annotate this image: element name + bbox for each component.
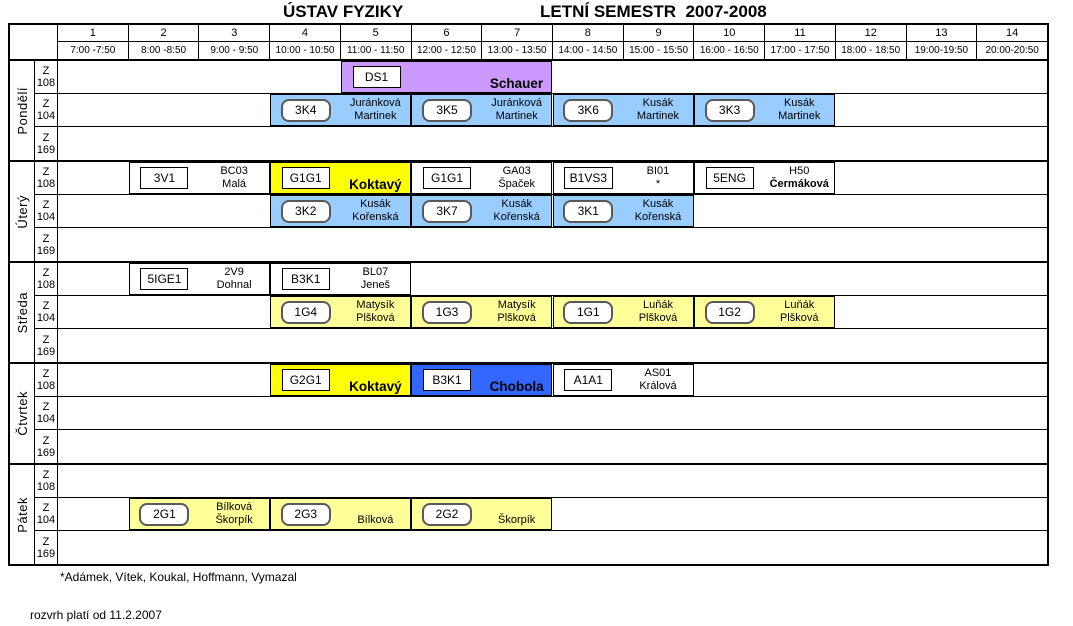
class-block: 1G4MatysíkPlšková [270, 296, 411, 328]
room-label-line1: Z [35, 368, 57, 380]
class-code-cell: 3K5 [412, 99, 482, 122]
room-row: Z1041G4MatysíkPlšková1G3MatysíkPlšková1G… [35, 296, 1047, 329]
class-block: B3K1Chobola [411, 364, 552, 396]
class-block: B3K1BL07Jeneš [270, 263, 411, 295]
room-label-line2: 108 [35, 178, 57, 190]
day-rows: Z108G2G1KoktavýB3K1ChobolaA1A1AS01Králov… [35, 364, 1047, 463]
class-block: A1A1AS01Králová [553, 364, 694, 396]
room-label-line1: Z [35, 502, 57, 514]
class-code-chip: 1G4 [281, 301, 331, 324]
class-code-cell: 3K1 [554, 200, 624, 223]
class-code-cell: 5IGE1 [130, 268, 200, 290]
room-label: Z108 [35, 61, 58, 93]
class-code-cell: B1VS3 [554, 167, 624, 189]
block-line2: Martinek [623, 110, 693, 123]
class-text-cell: KusákKořenská [482, 198, 552, 224]
day-rows: Z1083V1BC03MaláG1G1KoktavýG1G1GA03Špaček… [35, 162, 1047, 261]
row-body: 2G1BílkováŠkorpík2G3Bílková2G2Škorpík [58, 498, 1047, 530]
room-label-line1: Z [35, 536, 57, 548]
block-line1: AS01 [623, 367, 693, 380]
period-time: 20:00-20:50 [976, 42, 1047, 59]
class-block: 1G1LuňákPlšková [553, 296, 694, 328]
block-line1 [482, 367, 552, 380]
class-code-cell: 1G4 [271, 301, 341, 324]
row-body: 3K2KusákKořenská3K7KusákKořenská3K1Kusák… [58, 195, 1047, 227]
period-number: 8 [552, 25, 623, 42]
room-label: Z104 [35, 195, 58, 227]
day-rows: Z108DS1SchauerZ1043K4JuránkováMartinek3K… [35, 61, 1047, 160]
block-line2: Jeneš [341, 279, 411, 292]
room-label: Z169 [35, 329, 58, 362]
block-line1: BL07 [341, 266, 411, 279]
class-text-cell: BílkováŠkorpík [199, 501, 269, 527]
class-text-cell: Bílková [341, 501, 411, 527]
day-band: ÚterýZ1083V1BC03MaláG1G1KoktavýG1G1GA03Š… [10, 162, 1047, 263]
block-line1: 2V9 [199, 266, 269, 279]
header-corner-cell [10, 25, 57, 59]
period-time: 14:00 - 14:50 [552, 42, 623, 59]
class-text-cell: MatysíkPlšková [341, 299, 411, 325]
period-time: 19:00-19:50 [906, 42, 977, 59]
period-time: 16:00 - 16:50 [693, 42, 764, 59]
class-code-cell: B3K1 [412, 369, 482, 391]
room-label-line1: Z [35, 233, 57, 245]
room-label-line2: 169 [35, 548, 57, 560]
room-row: Z169 [35, 329, 1047, 362]
class-code-chip: B3K1 [423, 369, 471, 391]
room-label: Z104 [35, 498, 58, 530]
block-line1: Matysík [341, 299, 411, 312]
period-number: 4 [269, 25, 340, 42]
block-line2: Martinek [764, 110, 834, 123]
class-code-cell: B3K1 [271, 268, 341, 290]
block-line2: Plšková [482, 312, 552, 325]
room-row: Z1042G1BílkováŠkorpík2G3Bílková2G2Škorpí… [35, 498, 1047, 531]
class-text-cell: 2V9Dohnal [199, 266, 269, 292]
row-body: 3K4JuránkováMartinek3K5JuránkováMartinek… [58, 94, 1047, 126]
period-number: 10 [693, 25, 764, 42]
room-row: Z108 [35, 465, 1047, 498]
room-row: Z1085IGE12V9DohnalB3K1BL07Jeneš [35, 263, 1047, 296]
day-label: Pátek [10, 465, 35, 564]
class-block: 3K5JuránkováMartinek [411, 94, 552, 126]
period-time: 9:00 - 9:50 [198, 42, 269, 59]
class-code-cell: 1G2 [695, 301, 765, 324]
class-code-chip: 3K5 [422, 99, 472, 122]
block-line1: Matysík [482, 299, 552, 312]
room-row: Z1043K2KusákKořenská3K7KusákKořenská3K1K… [35, 195, 1047, 228]
block-line1: Kusák [623, 198, 693, 211]
block-line2: Škorpík [199, 514, 269, 527]
class-code-cell: A1A1 [554, 369, 624, 391]
class-code-chip: 1G1 [563, 301, 613, 324]
class-code-chip: 3K1 [563, 200, 613, 223]
class-text-cell: JuránkováMartinek [482, 97, 552, 123]
class-block: 2G3Bílková [270, 498, 411, 530]
class-code-cell: 3K2 [271, 200, 341, 223]
class-code-chip: 3K3 [705, 99, 755, 122]
block-line1: Bílková [199, 501, 269, 514]
day-name: Pondělí [15, 87, 30, 135]
day-label: Pondělí [10, 61, 35, 160]
class-text-cell: JuránkováMartinek [341, 97, 411, 123]
room-row: Z169 [35, 430, 1047, 463]
room-row: Z1043K4JuránkováMartinek3K5JuránkováMart… [35, 94, 1047, 127]
class-code-chip: 2G1 [139, 503, 189, 526]
class-code-chip: DS1 [353, 66, 401, 88]
class-block: 3K3KusákMartinek [694, 94, 835, 126]
period-number: 5 [340, 25, 411, 42]
room-label: Z104 [35, 397, 58, 429]
class-text-cell: Škorpík [482, 501, 552, 527]
block-line1 [341, 501, 411, 514]
room-label-line2: 108 [35, 279, 57, 291]
class-code-cell: G1G1 [271, 167, 341, 189]
room-row: Z104 [35, 397, 1047, 430]
room-row: Z169 [35, 228, 1047, 261]
class-code-cell: G1G1 [412, 167, 482, 189]
day-band: ČtvrtekZ108G2G1KoktavýB3K1ChobolaA1A1AS0… [10, 364, 1047, 465]
room-label-line1: Z [35, 435, 57, 447]
block-line2: Kořenská [341, 211, 411, 224]
block-line1: BC03 [199, 165, 269, 178]
period-time: 15:00 - 15:50 [623, 42, 694, 59]
class-code-chip: 3K2 [281, 200, 331, 223]
block-line2: Kořenská [623, 211, 693, 224]
block-line2: Chobola [482, 380, 552, 394]
block-line2: Koktavý [341, 178, 411, 192]
period-number: 12 [835, 25, 906, 42]
block-line1: Kusák [623, 97, 693, 110]
room-label: Z108 [35, 263, 58, 295]
day-band: PátekZ108Z1042G1BílkováŠkorpík2G3Bílková… [10, 465, 1047, 564]
room-label-line2: 108 [35, 77, 57, 89]
class-code-chip: 5ENG [706, 167, 754, 189]
block-line2: Dohnal [199, 279, 269, 292]
class-code-chip: 3K7 [422, 200, 472, 223]
class-block: G1G1Koktavý [270, 162, 411, 194]
class-code-cell: 3V1 [130, 167, 200, 189]
room-label-line1: Z [35, 166, 57, 178]
class-text-cell: BC03Malá [199, 165, 269, 191]
room-label-line1: Z [35, 334, 57, 346]
block-line1: Kusák [764, 97, 834, 110]
class-text-cell: BL07Jeneš [341, 266, 411, 292]
class-code-chip: 3K6 [563, 99, 613, 122]
class-block: 2G2Škorpík [411, 498, 552, 530]
block-line1 [341, 165, 411, 178]
class-text-cell: KusákKořenská [341, 198, 411, 224]
page-title-semester: LETNÍ SEMESTR 2007-2008 [540, 2, 767, 22]
room-label-line2: 104 [35, 211, 57, 223]
class-code-chip: G2G1 [282, 369, 330, 391]
period-number: 13 [906, 25, 977, 42]
class-text-cell: Koktavý [341, 165, 411, 192]
period-number: 1 [57, 25, 128, 42]
room-label-line1: Z [35, 65, 57, 77]
room-label: Z104 [35, 296, 58, 328]
block-line1: Juránková [482, 97, 552, 110]
period-time: 17:00 - 17:50 [764, 42, 835, 59]
period-time: 7:00 -7:50 [57, 42, 128, 59]
block-line1: Luňák [764, 299, 834, 312]
class-code-cell: 5ENG [695, 167, 765, 189]
day-rows: Z108Z1042G1BílkováŠkorpík2G3Bílková2G2Šk… [35, 465, 1047, 564]
room-label: Z169 [35, 531, 58, 564]
block-line1: H50 [764, 165, 834, 178]
class-code-cell: G2G1 [271, 369, 341, 391]
period-number: 11 [764, 25, 835, 42]
day-rows: Z1085IGE12V9DohnalB3K1BL07JenešZ1041G4Ma… [35, 263, 1047, 362]
class-code-cell: 1G3 [412, 301, 482, 324]
timetable: 12345678910111213147:00 -7:508:00 -8:509… [8, 23, 1049, 566]
class-block: 3K2KusákKořenská [270, 195, 411, 227]
room-row: Z1083V1BC03MaláG1G1KoktavýG1G1GA03Špaček… [35, 162, 1047, 195]
class-text-cell: KusákMartinek [764, 97, 834, 123]
room-label: Z108 [35, 465, 58, 497]
class-code-cell: 1G1 [554, 301, 624, 324]
class-code-chip: 1G3 [422, 301, 472, 324]
class-code-cell: 3K4 [271, 99, 341, 122]
block-line2: Schauer [482, 77, 552, 91]
page-title-institute: ÚSTAV FYZIKY [283, 2, 403, 22]
block-line2: Malá [199, 178, 269, 191]
block-line2: Koktavý [341, 380, 411, 394]
row-body [58, 228, 1047, 261]
class-text-cell: MatysíkPlšková [482, 299, 552, 325]
block-line1 [341, 367, 411, 380]
class-block: 3V1BC03Malá [129, 162, 270, 194]
block-line2: Bílková [341, 514, 411, 527]
row-body: 1G4MatysíkPlšková1G3MatysíkPlšková1G1Luň… [58, 296, 1047, 328]
period-number: 9 [623, 25, 694, 42]
period-time: 18:00 - 18:50 [835, 42, 906, 59]
block-line2: Plšková [623, 312, 693, 325]
class-code-chip: G1G1 [282, 167, 330, 189]
row-body: 3V1BC03MaláG1G1KoktavýG1G1GA03ŠpačekB1VS… [58, 162, 1047, 194]
row-body [58, 329, 1047, 362]
room-label-line2: 169 [35, 245, 57, 257]
room-label: Z104 [35, 94, 58, 126]
block-line1: Juránková [341, 97, 411, 110]
class-block: 3K7KusákKořenská [411, 195, 552, 227]
day-name: Pátek [15, 497, 30, 533]
room-label: Z169 [35, 127, 58, 160]
class-text-cell: KusákMartinek [623, 97, 693, 123]
class-text-cell: Koktavý [341, 367, 411, 394]
class-code-chip: G1G1 [423, 167, 471, 189]
row-body: G2G1KoktavýB3K1ChobolaA1A1AS01Králová [58, 364, 1047, 396]
day-label: Úterý [10, 162, 35, 261]
class-code-chip: 3V1 [140, 167, 188, 189]
class-code-cell: DS1 [342, 66, 412, 88]
class-block: 5IGE12V9Dohnal [129, 263, 270, 295]
class-code-chip: B1VS3 [564, 167, 613, 189]
class-text-cell: Chobola [482, 367, 552, 394]
class-code-chip: 2G2 [422, 503, 472, 526]
room-label-line1: Z [35, 267, 57, 279]
footnote-asterisk: *Adámek, Vítek, Koukal, Hoffmann, Vymaza… [60, 570, 297, 584]
class-code-cell: 3K6 [554, 99, 624, 122]
block-line2: Plšková [341, 312, 411, 325]
day-label: Čtvrtek [10, 364, 35, 463]
room-label-line2: 104 [35, 110, 57, 122]
row-body [58, 430, 1047, 463]
room-label-line2: 104 [35, 514, 57, 526]
room-label-line2: 104 [35, 413, 57, 425]
block-line2: Králová [623, 380, 693, 393]
class-code-chip: 3K4 [281, 99, 331, 122]
row-body [58, 465, 1047, 497]
block-line2: Špaček [482, 178, 552, 191]
day-name: Středa [15, 292, 30, 333]
room-label-line1: Z [35, 199, 57, 211]
class-code-chip: 2G3 [281, 503, 331, 526]
block-line2: Kořenská [482, 211, 552, 224]
day-name: Úterý [15, 195, 30, 229]
room-label-line1: Z [35, 98, 57, 110]
class-text-cell: H50Čermáková [764, 165, 834, 191]
class-block: G1G1GA03Špaček [411, 162, 552, 194]
class-code-cell: 2G3 [271, 503, 341, 526]
block-line1: BI01 [623, 165, 693, 178]
class-code-cell: 2G1 [130, 503, 200, 526]
period-time: 13:00 - 13:50 [481, 42, 552, 59]
block-line1 [482, 501, 552, 514]
room-label-line1: Z [35, 132, 57, 144]
block-line1: GA03 [482, 165, 552, 178]
block-line2: Martinek [482, 110, 552, 123]
period-time: 12:00 - 12:50 [411, 42, 482, 59]
class-block: G2G1Koktavý [270, 364, 411, 396]
room-label-line1: Z [35, 469, 57, 481]
room-label-line1: Z [35, 300, 57, 312]
block-line1: Kusák [341, 198, 411, 211]
validity-note: rozvrh platí od 11.2.2007 [30, 608, 162, 622]
row-body: DS1Schauer [58, 61, 1047, 93]
class-code-cell: 2G2 [412, 503, 482, 526]
class-text-cell: BI01* [623, 165, 693, 191]
room-label-line2: 108 [35, 380, 57, 392]
room-row: Z108G2G1KoktavýB3K1ChobolaA1A1AS01Králov… [35, 364, 1047, 397]
period-time: 8:00 -8:50 [128, 42, 199, 59]
block-line1 [482, 64, 552, 77]
room-label-line2: 169 [35, 144, 57, 156]
row-body [58, 531, 1047, 564]
block-line2: Škorpík [482, 514, 552, 527]
class-block: 2G1BílkováŠkorpík [129, 498, 270, 530]
class-text-cell: LuňákPlšková [623, 299, 693, 325]
period-number: 2 [128, 25, 199, 42]
day-label: Středa [10, 263, 35, 362]
class-block: B1VS3BI01* [553, 162, 694, 194]
class-text-cell: LuňákPlšková [764, 299, 834, 325]
day-name: Čtvrtek [15, 391, 30, 436]
block-line1: Kusák [482, 198, 552, 211]
timetable-body: PondělíZ108DS1SchauerZ1043K4JuránkováMar… [10, 61, 1047, 564]
day-band: PondělíZ108DS1SchauerZ1043K4JuránkováMar… [10, 61, 1047, 162]
class-block: DS1Schauer [341, 61, 553, 93]
class-block: 1G2LuňákPlšková [694, 296, 835, 328]
row-body [58, 397, 1047, 429]
class-text-cell: AS01Králová [623, 367, 693, 393]
period-number: 6 [411, 25, 482, 42]
block-line1: Luňák [623, 299, 693, 312]
room-row: Z169 [35, 531, 1047, 564]
room-label: Z169 [35, 430, 58, 463]
class-code-chip: B3K1 [282, 268, 330, 290]
row-body: 5IGE12V9DohnalB3K1BL07Jeneš [58, 263, 1047, 295]
room-label-line1: Z [35, 401, 57, 413]
block-line2: Čermáková [764, 178, 834, 191]
room-label: Z108 [35, 162, 58, 194]
class-block: 1G3MatysíkPlšková [411, 296, 552, 328]
block-line2: * [623, 178, 693, 191]
class-code-cell: 3K7 [412, 200, 482, 223]
room-label-line2: 169 [35, 447, 57, 459]
class-block: 3K6KusákMartinek [553, 94, 694, 126]
room-row: Z108DS1Schauer [35, 61, 1047, 94]
room-label: Z169 [35, 228, 58, 261]
class-code-chip: 1G2 [705, 301, 755, 324]
room-label-line2: 104 [35, 312, 57, 324]
period-time: 11:00 - 11:50 [340, 42, 411, 59]
class-block: 3K1KusákKořenská [553, 195, 694, 227]
room-row: Z169 [35, 127, 1047, 160]
period-number: 7 [481, 25, 552, 42]
class-text-cell: GA03Špaček [482, 165, 552, 191]
room-label-line2: 108 [35, 481, 57, 493]
day-band: StředaZ1085IGE12V9DohnalB3K1BL07JenešZ10… [10, 263, 1047, 364]
class-code-cell: 3K3 [695, 99, 765, 122]
class-block: 5ENGH50Čermáková [694, 162, 835, 194]
room-label-line2: 169 [35, 346, 57, 358]
room-label: Z108 [35, 364, 58, 396]
block-line2: Martinek [341, 110, 411, 123]
period-number: 14 [976, 25, 1047, 42]
block-line2: Plšková [764, 312, 834, 325]
class-block: 3K4JuránkováMartinek [270, 94, 411, 126]
class-code-chip: A1A1 [564, 369, 612, 391]
period-number: 3 [198, 25, 269, 42]
class-text-cell: KusákKořenská [623, 198, 693, 224]
class-text-cell: Schauer [482, 64, 552, 91]
period-time: 10:00 - 10:50 [269, 42, 340, 59]
class-code-chip: 5IGE1 [140, 268, 188, 290]
timetable-header: 12345678910111213147:00 -7:508:00 -8:509… [10, 25, 1047, 61]
row-body [58, 127, 1047, 160]
